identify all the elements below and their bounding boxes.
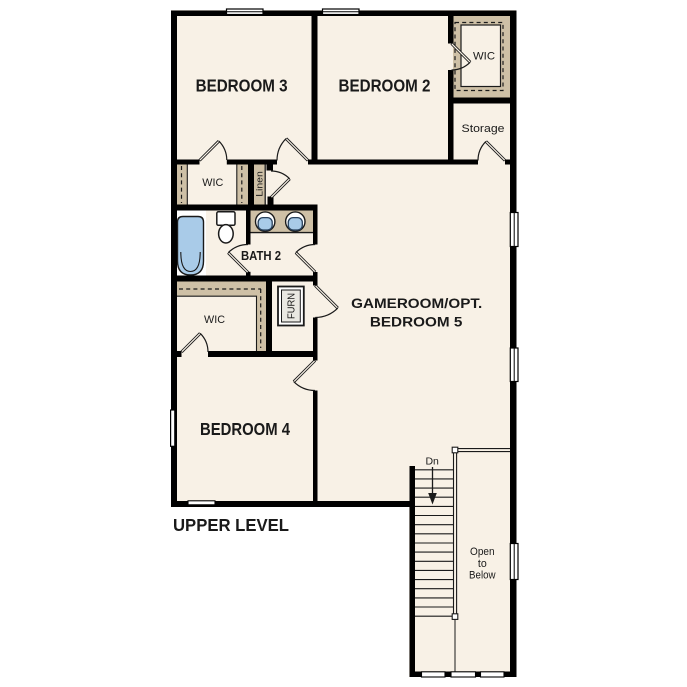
svg-text:Storage: Storage xyxy=(462,123,505,135)
svg-text:WIC: WIC xyxy=(202,177,223,189)
svg-text:GAMEROOM/OPT.: GAMEROOM/OPT. xyxy=(351,296,482,312)
svg-text:Linen: Linen xyxy=(254,171,265,197)
svg-text:BEDROOM 5: BEDROOM 5 xyxy=(370,314,463,330)
svg-text:to: to xyxy=(478,558,487,570)
svg-text:Dn: Dn xyxy=(425,456,439,468)
svg-text:UPPER LEVEL: UPPER LEVEL xyxy=(173,515,289,535)
svg-text:BATH 2: BATH 2 xyxy=(241,248,281,263)
svg-text:BEDROOM 3: BEDROOM 3 xyxy=(196,75,288,95)
svg-text:BEDROOM 2: BEDROOM 2 xyxy=(339,75,431,95)
svg-text:WIC: WIC xyxy=(473,50,495,62)
svg-text:FURN: FURN xyxy=(286,293,298,319)
svg-text:BEDROOM 4: BEDROOM 4 xyxy=(200,419,290,439)
svg-text:WIC: WIC xyxy=(204,314,225,326)
svg-text:Open: Open xyxy=(470,546,495,558)
svg-text:Below: Below xyxy=(469,570,496,582)
